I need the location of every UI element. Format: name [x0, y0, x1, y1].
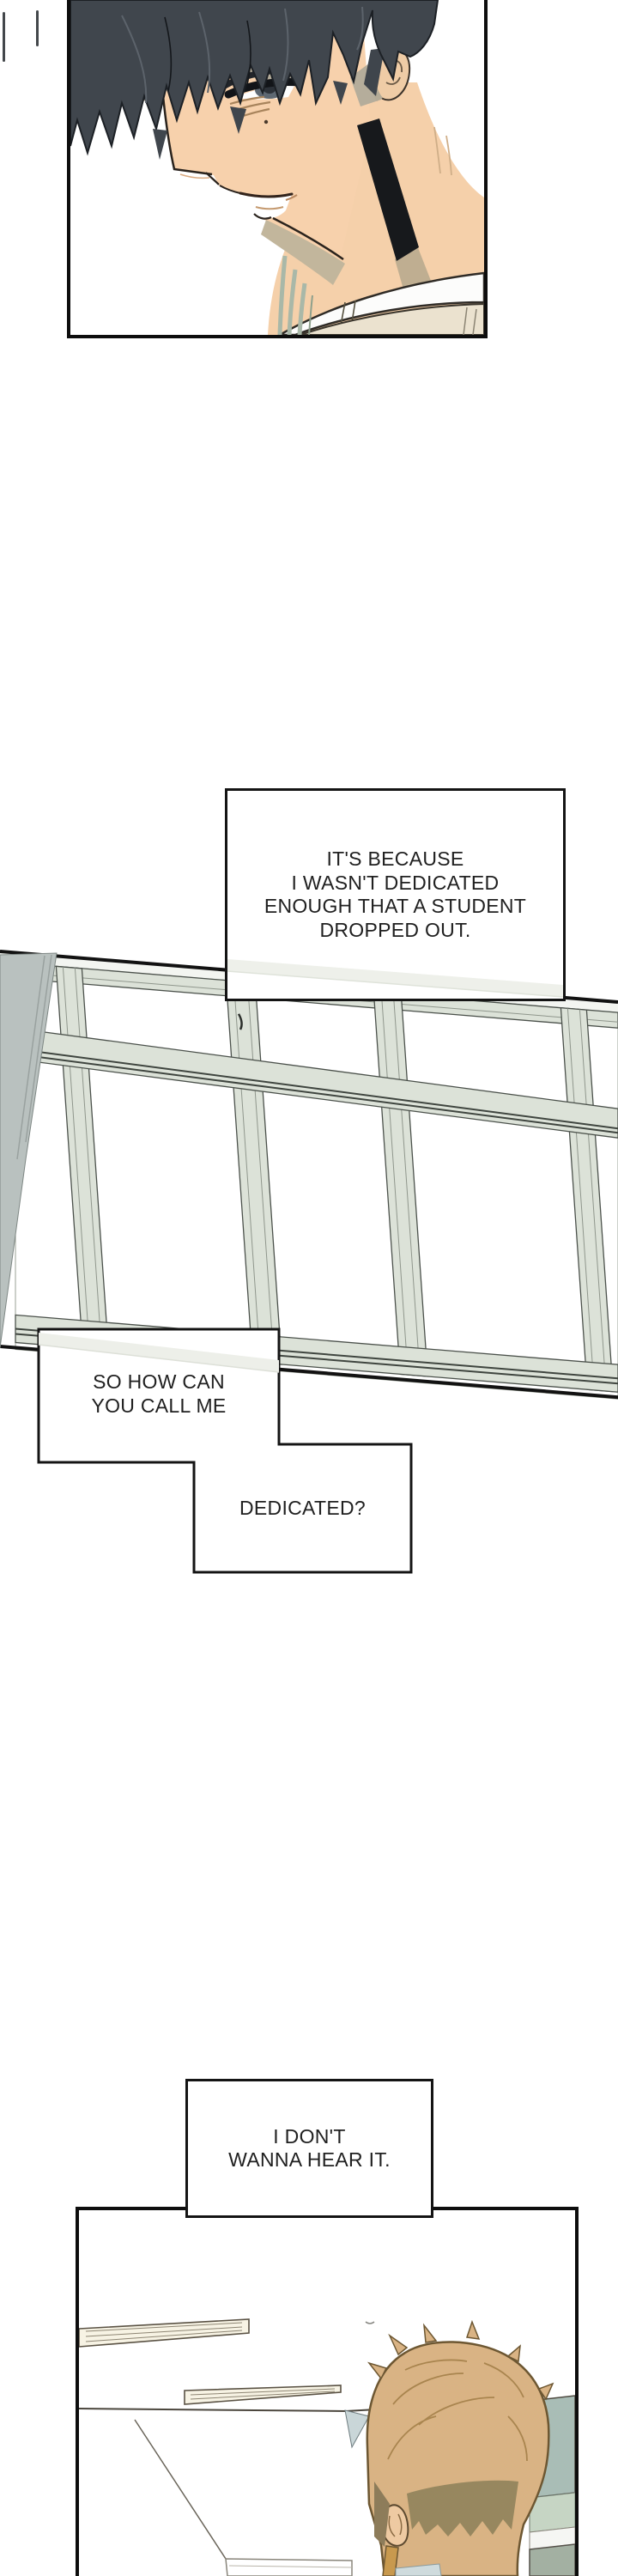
classroom-art: [79, 2210, 575, 2576]
panel-classroom: [76, 2207, 579, 2576]
speech-bubble-1: IT'S BECAUSE I WASN'T DEDICATED ENOUGH T…: [225, 788, 566, 1001]
beauty-mark: [264, 120, 268, 124]
bubble4-line1: I DON'T: [273, 2125, 345, 2149]
speech-bubble-2-3: [26, 1322, 429, 1580]
desk-band: [226, 2559, 352, 2576]
comic-page: IT'S BECAUSE I WASN'T DEDICATED ENOUGH T…: [0, 0, 618, 2576]
bubble4-line2: WANNA HEAR IT.: [228, 2148, 391, 2172]
speed-line-mark: [3, 12, 5, 62]
speed-line-mark: [36, 10, 39, 46]
panel-man-profile: [67, 0, 488, 338]
window-seen-through-bubble: [227, 791, 563, 999]
man-profile-art: [70, 0, 484, 335]
speech-bubble-4: I DON'T WANNA HEAR IT.: [185, 2079, 433, 2218]
